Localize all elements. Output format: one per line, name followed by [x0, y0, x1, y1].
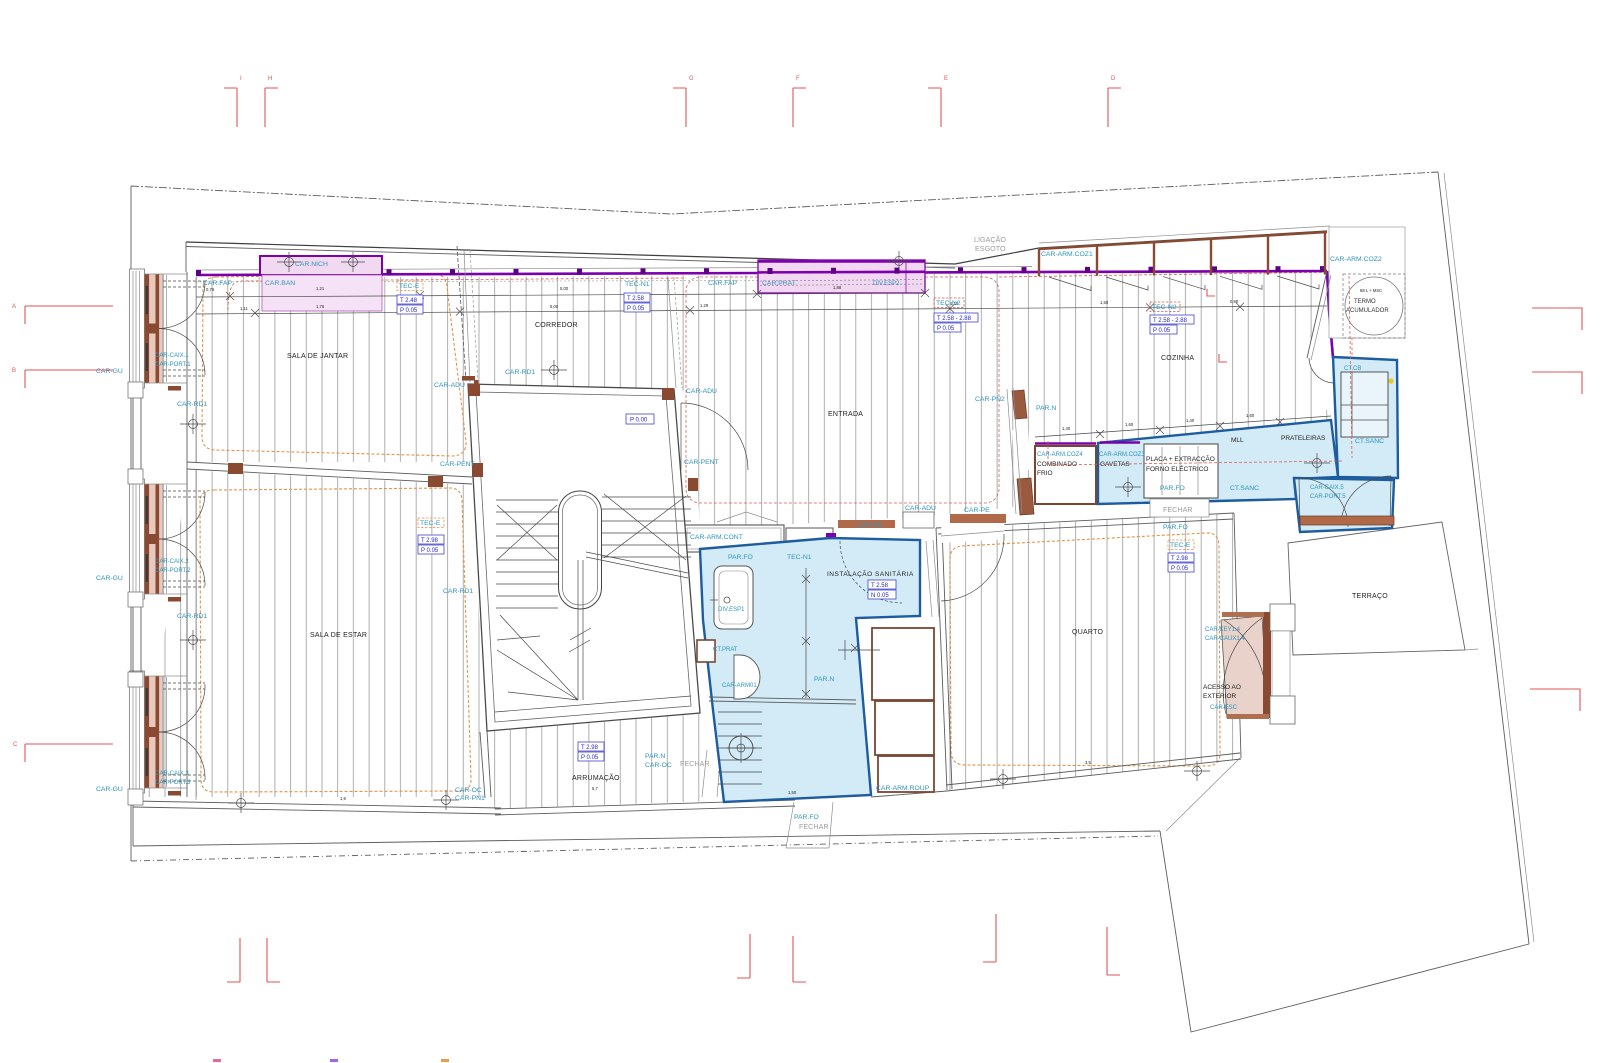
svg-text:CAR-OC: CAR-OC: [455, 787, 482, 794]
svg-text:1,11: 1,11: [240, 306, 249, 311]
svg-text:TEC-E: TEC-E: [1170, 542, 1191, 549]
svg-text:A: A: [12, 304, 16, 310]
svg-text:CAR-PN2: CAR-PN2: [975, 396, 1005, 403]
svg-text:TEC-N2: TEC-N2: [936, 300, 961, 307]
svg-text:CORREDOR: CORREDOR: [535, 322, 578, 329]
svg-text:1,9: 1,9: [340, 796, 346, 801]
svg-text:P 0.05: P 0.05: [581, 755, 599, 761]
svg-text:PAR.FO: PAR.FO: [1163, 524, 1188, 531]
svg-text:TEC-E: TEC-E: [420, 520, 441, 527]
svg-text:CAR-CAIX.5: CAR-CAIX.5: [1310, 485, 1344, 491]
svg-text:CAR-KEY1.4: CAR-KEY1.4: [1205, 627, 1241, 633]
svg-text:CAR-ARM01: CAR-ARM01: [722, 683, 757, 689]
svg-text:CAR-ARM.COZ2: CAR-ARM.COZ2: [1330, 256, 1382, 263]
svg-text:CAR-ARM.COZ1: CAR-ARM.COZ1: [1041, 251, 1093, 258]
svg-text:CAR-RD1: CAR-RD1: [443, 588, 473, 595]
svg-text:P 0.05: P 0.05: [400, 308, 418, 314]
svg-text:PAR.N: PAR.N: [814, 676, 834, 683]
svg-text:D: D: [1111, 76, 1116, 82]
svg-text:DIV.ESP1: DIV.ESP1: [718, 607, 745, 613]
svg-text:88 L + MSC: 88 L + MSC: [1360, 288, 1382, 293]
svg-text:H: H: [268, 76, 272, 82]
svg-text:T 2.98: T 2.98: [421, 538, 439, 544]
svg-text:TERMO: TERMO: [1354, 299, 1376, 305]
svg-text:T 2.98: T 2.98: [1171, 556, 1189, 562]
svg-text:P 0.05: P 0.05: [1153, 328, 1171, 334]
svg-text:0,90: 0,90: [1230, 299, 1239, 304]
svg-text:1,60: 1,60: [1246, 413, 1255, 418]
svg-text:1,60: 1,60: [1125, 422, 1134, 427]
svg-text:P 0.05: P 0.05: [1171, 566, 1189, 572]
svg-text:CAR-ARM.CONT: CAR-ARM.CONT: [690, 534, 743, 541]
svg-text:FECHAR: FECHAR: [799, 822, 829, 831]
svg-text:T 2.58 - 2.88: T 2.58 - 2.88: [937, 316, 972, 322]
svg-text:ACESSO AO: ACESSO AO: [1203, 684, 1241, 691]
svg-text:MLL: MLL: [1231, 437, 1244, 444]
svg-text:QUARTO: QUARTO: [1072, 629, 1103, 636]
svg-text:CAR-CAIX.1: CAR-CAIX.1: [155, 353, 189, 359]
svg-text:FECHAR: FECHAR: [680, 759, 710, 768]
svg-text:CAR.FAP: CAR.FAP: [203, 280, 233, 287]
svg-text:CT.CB: CT.CB: [1344, 366, 1361, 372]
svg-text:PAR.FO: PAR.FO: [728, 554, 753, 561]
svg-text:G: G: [689, 76, 694, 82]
svg-text:T 2.58 - 2.88: T 2.58 - 2.88: [1153, 318, 1188, 324]
svg-text:TEC-N1: TEC-N1: [787, 554, 812, 561]
svg-text:TEC-N1: TEC-N1: [625, 281, 650, 288]
svg-text:B: B: [12, 368, 16, 374]
svg-text:ACUMULADOR: ACUMULADOR: [1346, 308, 1389, 314]
svg-text:CAR.PRAT: CAR.PRAT: [762, 280, 796, 287]
svg-text:CAR-RD1: CAR-RD1: [177, 613, 207, 620]
svg-text:TERRAÇO: TERRAÇO: [1352, 593, 1388, 600]
svg-text:T 2.48: T 2.48: [400, 298, 418, 304]
svg-text:1,76: 1,76: [316, 304, 325, 309]
svg-text:C: C: [13, 742, 18, 748]
svg-text:COZINHA: COZINHA: [1161, 355, 1194, 362]
svg-text:CT.PRAT: CT.PRAT: [713, 647, 738, 653]
svg-text:FECHAR: FECHAR: [1163, 505, 1193, 514]
svg-text:5,7: 5,7: [592, 786, 598, 791]
svg-text:PLACA + EXTRACÇÃO: PLACA + EXTRACÇÃO: [1146, 454, 1215, 463]
svg-text:P 0.05: P 0.05: [421, 548, 439, 554]
svg-text:5,00: 5,00: [550, 304, 559, 309]
svg-text:P 0.00: P 0.00: [630, 418, 648, 424]
svg-text:F: F: [796, 76, 800, 82]
svg-text:LIGAÇÃO: LIGAÇÃO: [974, 235, 1006, 244]
svg-text:FORNO ELÉCTRICO: FORNO ELÉCTRICO: [1146, 464, 1208, 473]
svg-text:CAR-ARM.COZ4: CAR-ARM.COZ4: [1037, 452, 1083, 458]
svg-text:CAR.NICH: CAR.NICH: [295, 261, 328, 268]
svg-text:CAR-PE: CAR-PE: [857, 522, 883, 529]
svg-text:PAR.FO: PAR.FO: [794, 814, 819, 821]
svg-text:CAR-PORT.1: CAR-PORT.1: [155, 362, 191, 368]
svg-text:SALA DE JANTAR: SALA DE JANTAR: [287, 353, 348, 360]
svg-text:CAR-PORT.3: CAR-PORT.3: [155, 780, 191, 786]
svg-text:E: E: [944, 76, 948, 82]
svg-text:N 0.05: N 0.05: [871, 593, 889, 599]
svg-text:CAR-RD1: CAR-RD1: [177, 401, 207, 408]
svg-text:T 2.58: T 2.58: [871, 583, 889, 589]
svg-text:SALA DE ESTAR: SALA DE ESTAR: [310, 632, 367, 639]
svg-text:CAR-ADU: CAR-ADU: [686, 388, 717, 395]
svg-text:TEC-E: TEC-E: [399, 283, 420, 290]
svg-text:T 2.98: T 2.98: [581, 745, 599, 751]
svg-text:1,40: 1,40: [1062, 426, 1071, 431]
svg-text:FRIO: FRIO: [1037, 470, 1053, 477]
svg-text:5,00: 5,00: [560, 286, 569, 291]
svg-text:INSTALAÇÃO SANITÁRIA: INSTALAÇÃO SANITÁRIA: [827, 569, 914, 578]
svg-text:P 0.05: P 0.05: [627, 306, 645, 312]
svg-text:CAR-RD1: CAR-RD1: [505, 369, 535, 376]
svg-text:CAR-GU: CAR-GU: [96, 575, 123, 582]
svg-text:ARRUMAÇÃO: ARRUMAÇÃO: [572, 773, 620, 782]
svg-text:1,50: 1,50: [1100, 300, 1109, 305]
svg-text:TEC-N2: TEC-N2: [1152, 304, 1177, 311]
svg-text:0,76: 0,76: [206, 287, 215, 292]
svg-text:CAR-CAIX.3: CAR-CAIX.3: [155, 771, 189, 777]
svg-text:CAR-ARM.ROUP: CAR-ARM.ROUP: [876, 785, 930, 792]
svg-text:CAR-PORT.2: CAR-PORT.2: [155, 568, 191, 574]
svg-text:1,50: 1,50: [788, 790, 797, 795]
svg-text:CAR.BAN: CAR.BAN: [265, 280, 295, 287]
svg-text:CAR-GU: CAR-GU: [96, 786, 123, 793]
svg-text:CAR-GU: CAR-GU: [96, 368, 123, 375]
svg-text:CAR-PORT.5: CAR-PORT.5: [1310, 494, 1346, 500]
svg-text:1,40: 1,40: [1186, 418, 1195, 423]
svg-text:CAR-ESC: CAR-ESC: [1210, 705, 1238, 711]
svg-text:CAR-CAIX.2: CAR-CAIX.2: [155, 559, 189, 565]
svg-text:CAR-CAUX1.4: CAR-CAUX1.4: [1205, 636, 1245, 642]
svg-text:CAR-PENT: CAR-PENT: [440, 461, 475, 468]
svg-text:PAR.N: PAR.N: [1036, 405, 1056, 412]
svg-text:T 2.58: T 2.58: [627, 296, 645, 302]
svg-text:P 0.05: P 0.05: [937, 326, 955, 332]
svg-text:CAR-PENT: CAR-PENT: [684, 459, 719, 466]
svg-text:CT.SANC: CT.SANC: [1230, 485, 1259, 492]
svg-text:1,88: 1,88: [833, 285, 842, 290]
svg-text:CAR-OC: CAR-OC: [645, 762, 672, 769]
svg-text:ESGOTO: ESGOTO: [975, 244, 1006, 253]
svg-text:CAR-PE: CAR-PE: [964, 507, 990, 514]
svg-text:CAR-ADU: CAR-ADU: [905, 505, 936, 512]
svg-text:PAR.FO: PAR.FO: [1160, 485, 1185, 492]
svg-text:CAR-ARM.COZ3: CAR-ARM.COZ3: [1099, 452, 1145, 458]
svg-text:CAR-PN1: CAR-PN1: [455, 795, 485, 802]
svg-text:CAR.FAP: CAR.FAP: [708, 280, 738, 287]
svg-text:CT.SANC: CT.SANC: [1355, 438, 1384, 445]
svg-text:PRATELEIRAS: PRATELEIRAS: [1281, 435, 1326, 442]
svg-text:1,21: 1,21: [316, 286, 325, 291]
svg-text:EXTERIOR: EXTERIOR: [1203, 693, 1237, 700]
svg-text:PAR.N: PAR.N: [645, 753, 665, 760]
svg-text:3,5: 3,5: [1085, 760, 1091, 765]
svg-text:CAR-ADU: CAR-ADU: [434, 382, 465, 389]
svg-text:ENTRADA: ENTRADA: [828, 411, 863, 418]
svg-text:1,29: 1,29: [700, 303, 709, 308]
